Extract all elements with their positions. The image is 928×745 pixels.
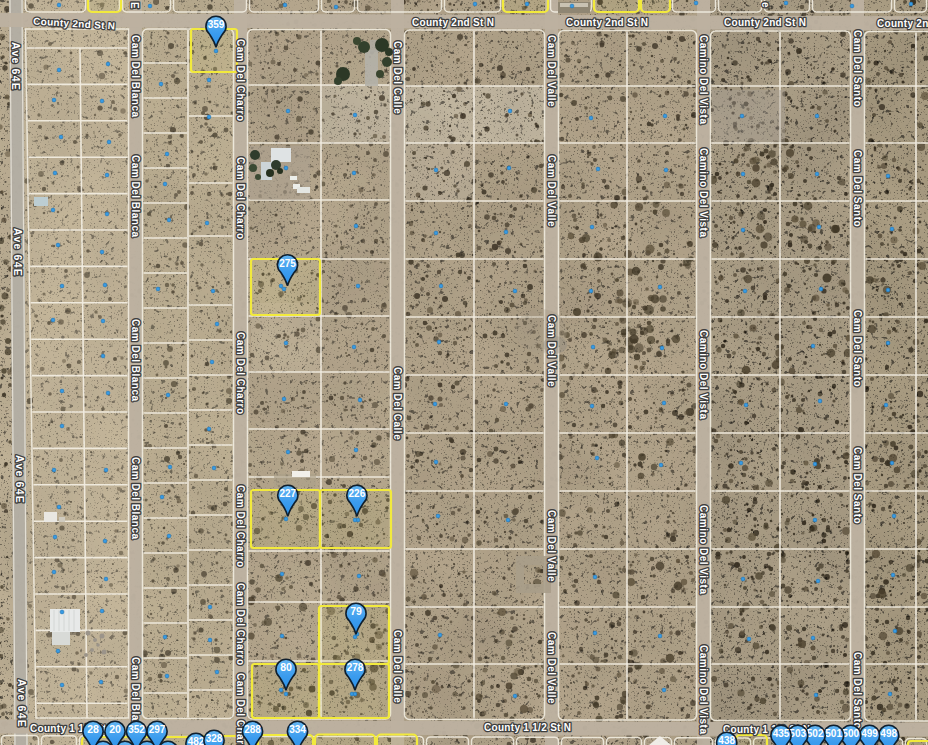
svg-text:20: 20 bbox=[109, 723, 121, 735]
svg-text:79: 79 bbox=[350, 605, 362, 617]
svg-text:E: E bbox=[129, 2, 140, 9]
svg-text:Cam Del Calle: Cam Del Calle bbox=[392, 41, 403, 114]
svg-text:Cam Del Santo: Cam Del Santo bbox=[852, 30, 863, 107]
svg-text:Cam Del Valle: Cam Del Valle bbox=[546, 510, 557, 582]
svg-text:Cam Del Charro: Cam Del Charro bbox=[235, 39, 246, 122]
svg-text:435: 435 bbox=[773, 728, 790, 739]
svg-text:288: 288 bbox=[244, 724, 261, 735]
svg-text:Cam Del Valle: Cam Del Valle bbox=[546, 315, 557, 387]
svg-text:275: 275 bbox=[279, 258, 296, 269]
svg-text:498: 498 bbox=[880, 728, 897, 739]
svg-text:28: 28 bbox=[87, 723, 99, 735]
svg-text:County 2nd St N: County 2nd St N bbox=[877, 18, 928, 29]
svg-text:Cam Del Santo: Cam Del Santo bbox=[852, 652, 863, 729]
svg-text:County 1 1/2 St N: County 1 1/2 St N bbox=[484, 722, 571, 733]
svg-text:Cam Del Blanca: Cam Del Blanca bbox=[130, 155, 141, 238]
svg-text:Cam Del Charro: Cam Del Charro bbox=[235, 583, 246, 666]
svg-text:Ave 64E: Ave 64E bbox=[14, 455, 26, 504]
svg-text:Cam Del Santo: Cam Del Santo bbox=[852, 310, 863, 387]
svg-text:499: 499 bbox=[861, 728, 878, 739]
svg-text:Cam Del Valle: Cam Del Valle bbox=[546, 35, 557, 107]
svg-text:334: 334 bbox=[289, 724, 306, 735]
svg-text:Ave 64E: Ave 64E bbox=[12, 228, 24, 277]
svg-text:Cam Del Blanca: Cam Del Blanca bbox=[130, 457, 141, 540]
svg-text:500: 500 bbox=[842, 728, 859, 739]
svg-text:Cam Del Charro: Cam Del Charro bbox=[235, 157, 246, 240]
svg-text:226: 226 bbox=[349, 488, 366, 499]
svg-text:Cam Del Santo: Cam Del Santo bbox=[852, 447, 863, 524]
svg-text:Cam Del Charro: Cam Del Charro bbox=[235, 332, 246, 415]
svg-text:438: 438 bbox=[718, 735, 735, 745]
svg-text:Cam Del Calle: Cam Del Calle bbox=[392, 630, 403, 703]
svg-text:Cam Del Santo: Cam Del Santo bbox=[852, 150, 863, 227]
svg-text:502: 502 bbox=[807, 728, 824, 739]
svg-text:Cam Del Valle: Cam Del Valle bbox=[546, 155, 557, 227]
svg-text:Cam Del Valle: Cam Del Valle bbox=[546, 632, 557, 704]
svg-text:e: e bbox=[760, 2, 771, 8]
svg-text:Camino Del Vista: Camino Del Vista bbox=[698, 505, 709, 595]
svg-text:Cam Del Calle: Cam Del Calle bbox=[392, 367, 403, 440]
svg-text:328: 328 bbox=[206, 733, 223, 744]
svg-text:352: 352 bbox=[128, 724, 145, 735]
svg-text:Cam Del Blanca: Cam Del Blanca bbox=[130, 319, 141, 402]
svg-text:297: 297 bbox=[149, 724, 166, 735]
svg-text:Camino Del Vista: Camino Del Vista bbox=[698, 330, 709, 420]
svg-text:Ave 64E: Ave 64E bbox=[10, 42, 22, 91]
svg-text:278: 278 bbox=[347, 662, 364, 673]
svg-text:Ave 64E: Ave 64E bbox=[16, 679, 28, 728]
svg-text:80: 80 bbox=[280, 661, 292, 673]
svg-text:503: 503 bbox=[789, 728, 806, 739]
svg-text:Camino Del Vista: Camino Del Vista bbox=[698, 645, 709, 735]
svg-text:Cam Del Blanca: Cam Del Blanca bbox=[130, 35, 141, 118]
svg-text:County 2nd St N: County 2nd St N bbox=[724, 17, 806, 28]
svg-text:County 2nd St N: County 2nd St N bbox=[566, 17, 648, 28]
svg-text:Cam Del Charro: Cam Del Charro bbox=[235, 485, 246, 568]
svg-text:County 2nd St N: County 2nd St N bbox=[412, 17, 494, 28]
svg-text:Camino Del Vista: Camino Del Vista bbox=[698, 148, 709, 238]
svg-text:Camino Del Vista: Camino Del Vista bbox=[698, 35, 709, 125]
svg-text:359: 359 bbox=[208, 19, 225, 30]
svg-text:227: 227 bbox=[279, 488, 296, 499]
svg-text:501: 501 bbox=[825, 728, 842, 739]
svg-text:482: 482 bbox=[188, 736, 205, 745]
